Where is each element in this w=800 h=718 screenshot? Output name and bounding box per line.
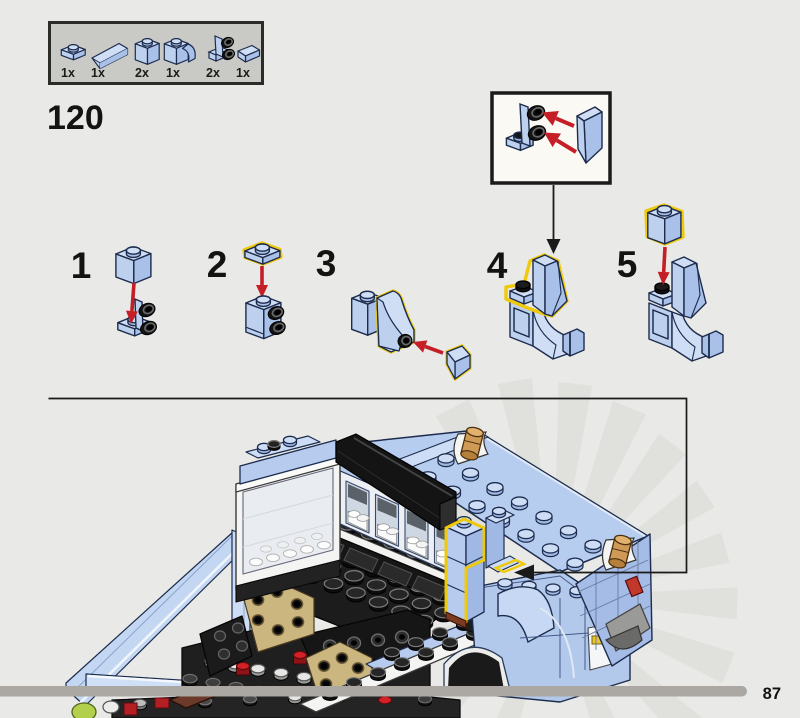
svg-text:2x: 2x [135, 66, 149, 80]
svg-text:4: 4 [487, 245, 508, 286]
svg-text:5: 5 [617, 244, 638, 285]
svg-text:87: 87 [763, 685, 781, 703]
svg-text:2x: 2x [206, 66, 220, 80]
svg-text:1x: 1x [236, 66, 250, 80]
svg-text:2: 2 [207, 244, 228, 285]
svg-text:1: 1 [71, 245, 92, 286]
svg-text:1x: 1x [91, 66, 105, 80]
svg-text:1x: 1x [166, 66, 180, 80]
svg-text:120: 120 [47, 99, 104, 137]
svg-text:3: 3 [316, 243, 337, 284]
svg-text:1x: 1x [61, 66, 75, 80]
